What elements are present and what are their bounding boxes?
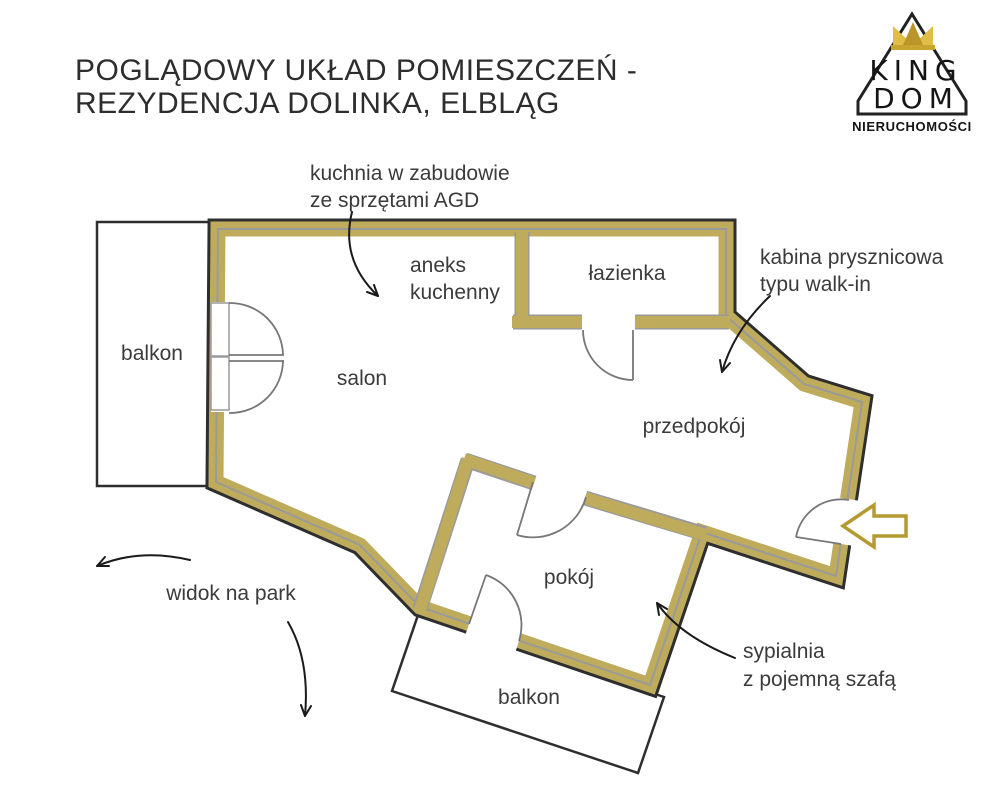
floor-plan-svg: balkon salon aneks kuchenny łazienka prz…	[0, 0, 982, 800]
page-title-line1: POGLĄDOWY UKŁAD POMIESZCZEŃ -	[75, 54, 637, 87]
floor-plan-page: balkon salon aneks kuchenny łazienka prz…	[0, 0, 982, 800]
room-label-hallway: przedpokój	[643, 415, 746, 438]
page-title: POGLĄDOWY UKŁAD POMIESZCZEŃ - REZYDENCJA…	[75, 54, 637, 120]
annotation-kitchen-2: ze sprzętami AGD	[310, 189, 479, 212]
room-label-salon: salon	[337, 367, 387, 390]
logo-word-bottom: DOM	[873, 82, 959, 115]
annotation-bedroom-1: sypialnia	[743, 640, 825, 663]
room-label-kitchenette-2: kuchenny	[410, 281, 500, 304]
balcony-door-panel-top	[211, 303, 229, 356]
room-label-balcony-bottom: balkon	[498, 686, 560, 709]
room-label-balcony-left: balkon	[121, 342, 183, 365]
page-title-line2: REZYDENCJA DOLINKA, ELBLĄG	[75, 87, 560, 120]
balcony-door-panel-bottom	[211, 357, 229, 410]
room-label-bedroom: pokój	[544, 566, 594, 589]
annotation-bedroom-2: z pojemną szafą	[743, 668, 896, 691]
room-label-bathroom: łazienka	[588, 262, 665, 285]
logo-subtitle: NIERUCHOMOŚCI	[852, 119, 972, 134]
annotation-shower-2: typu walk-in	[760, 273, 871, 296]
annotation-shower-1: kabina prysznicowa	[760, 246, 944, 269]
room-label-kitchenette-1: aneks	[410, 254, 466, 277]
annotation-kitchen-1: kuchnia w zabudowie	[310, 162, 510, 185]
annotation-park: widok na park	[165, 582, 296, 605]
